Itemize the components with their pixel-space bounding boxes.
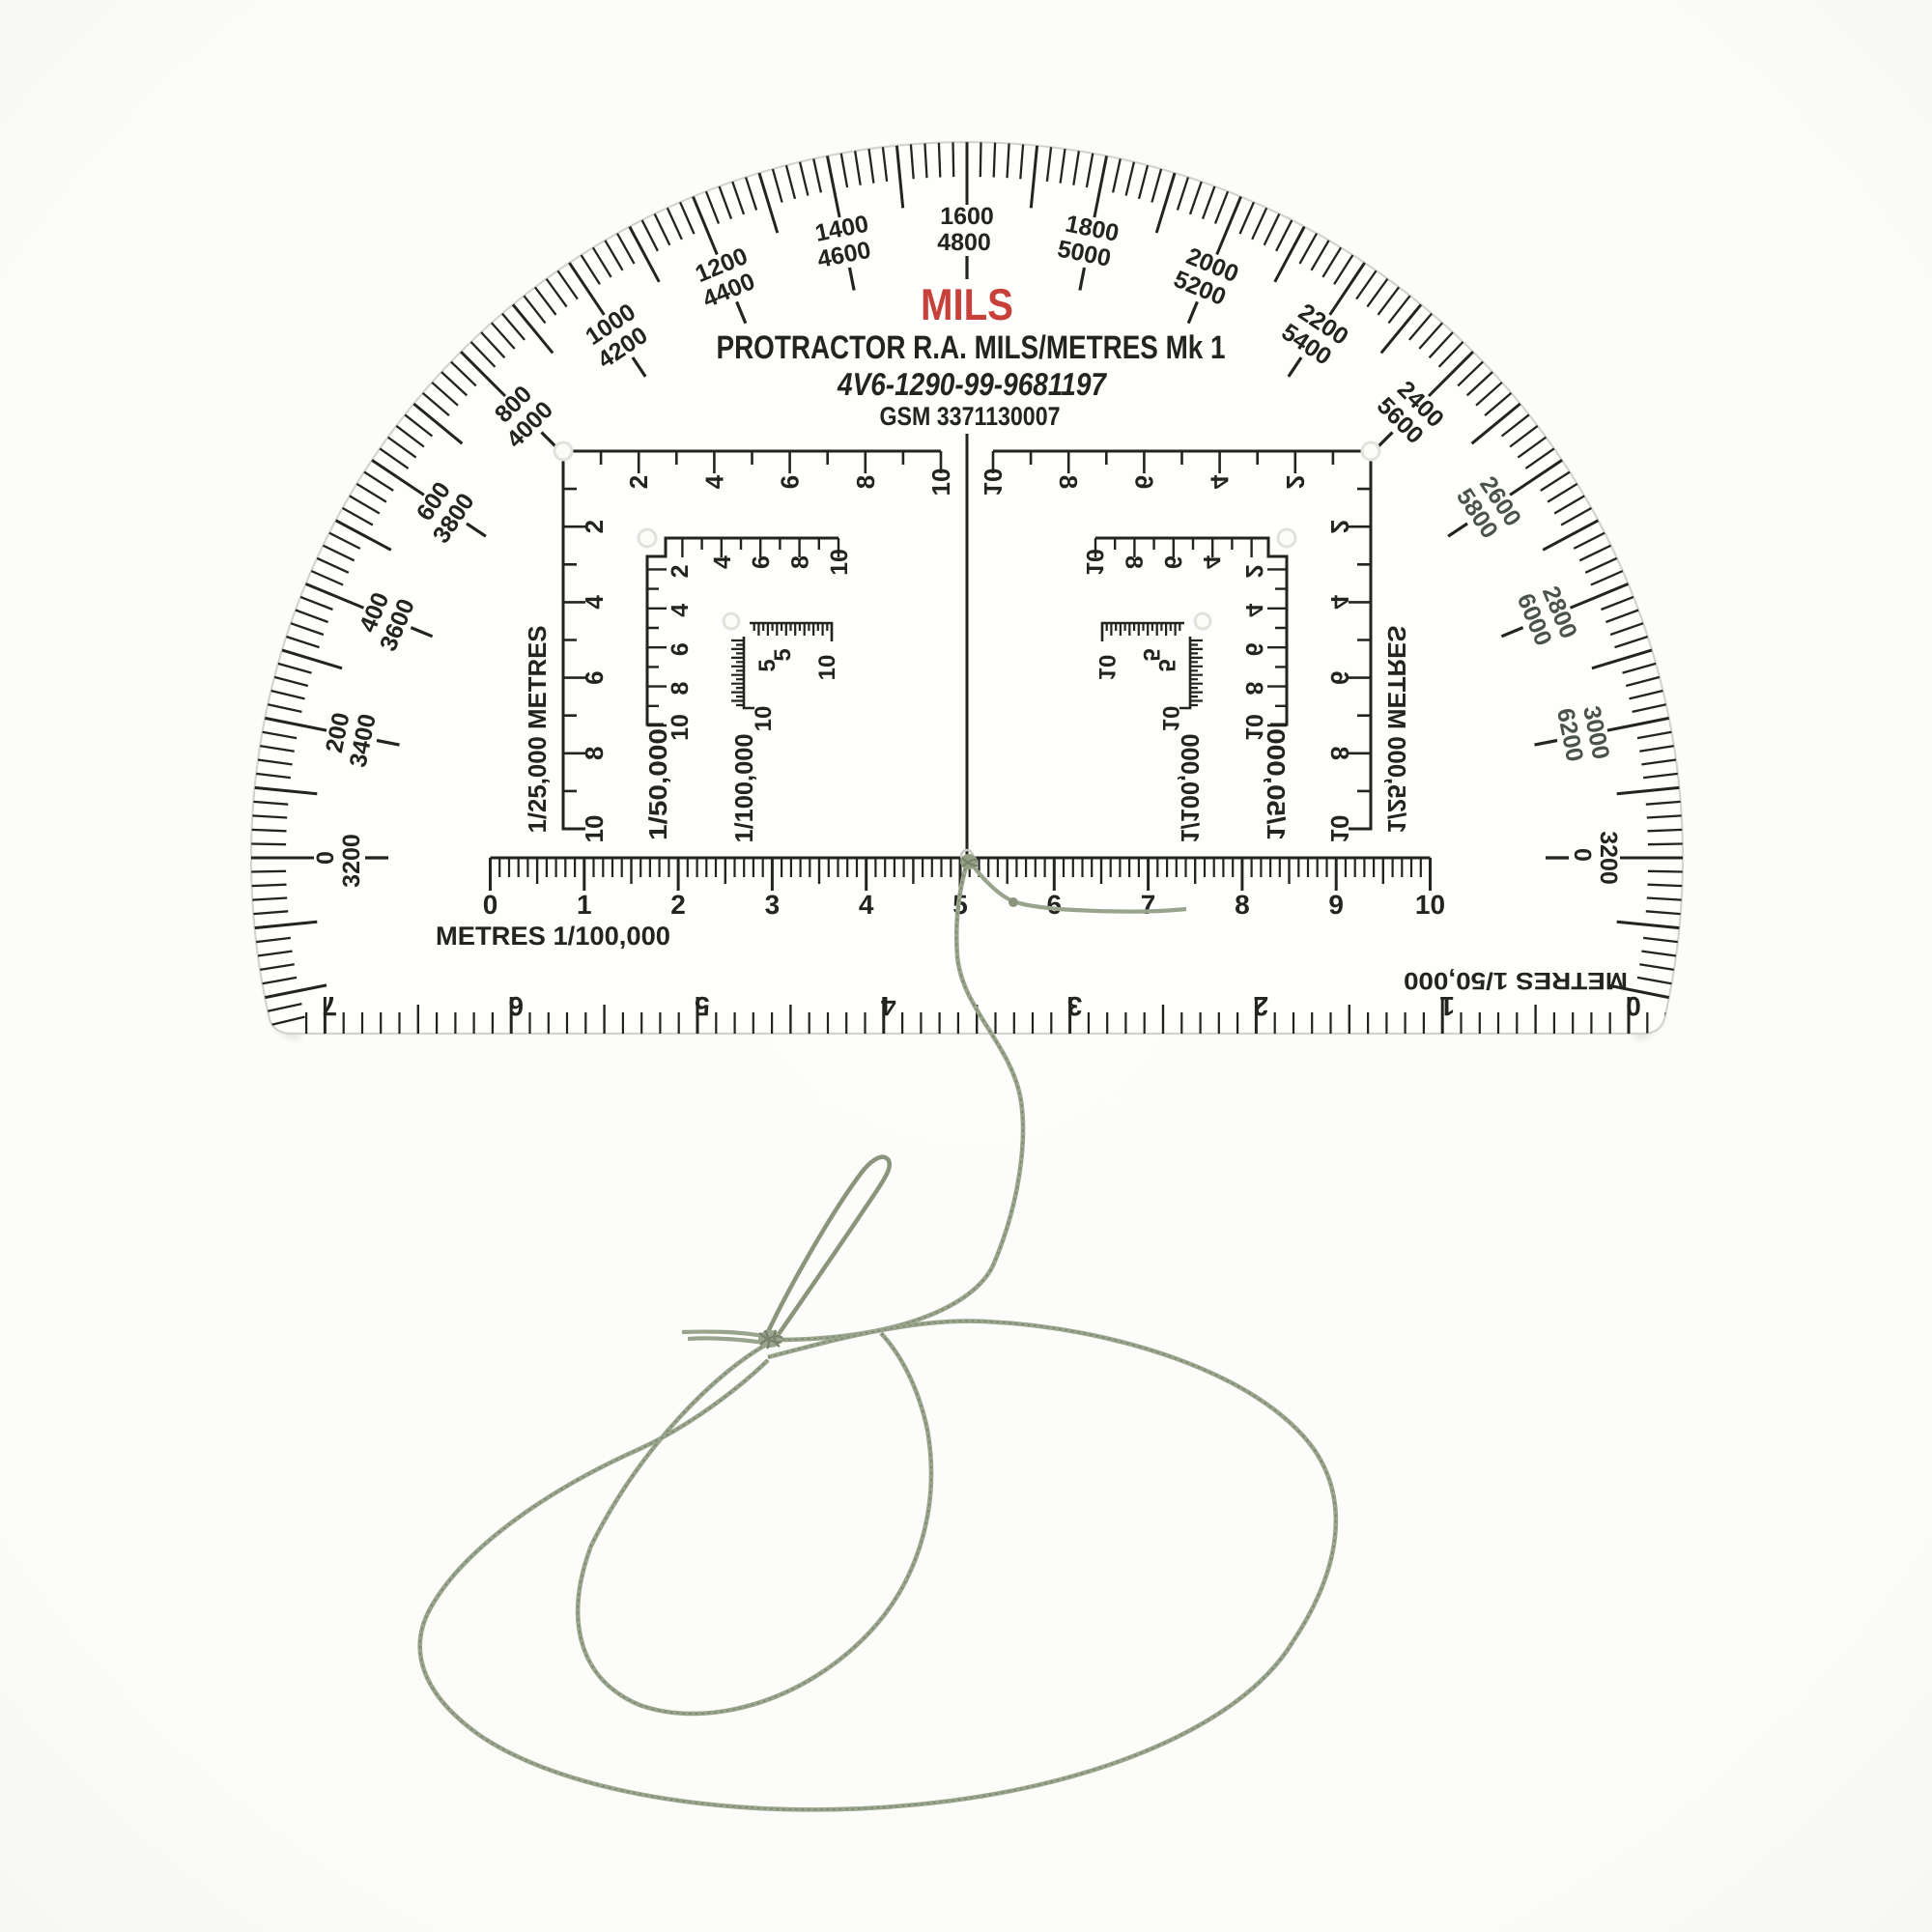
svg-text:4: 4 [1240, 604, 1267, 617]
svg-text:4: 4 [1325, 595, 1354, 610]
svg-text:METRES 1/50,000: METRES 1/50,000 [1404, 967, 1628, 994]
svg-text:7: 7 [1141, 890, 1156, 920]
svg-text:PROTRACTOR R.A. MILS/METRES Mk: PROTRACTOR R.A. MILS/METRES Mk 1 [717, 329, 1226, 366]
svg-text:METRES 1/100,000: METRES 1/100,000 [436, 922, 670, 951]
svg-text:4: 4 [699, 474, 728, 489]
svg-text:4: 4 [709, 555, 736, 569]
svg-text:6: 6 [1159, 555, 1186, 569]
svg-text:8: 8 [1325, 747, 1354, 760]
svg-text:6: 6 [508, 991, 524, 1021]
svg-text:2: 2 [1281, 475, 1310, 489]
svg-text:6: 6 [748, 555, 775, 569]
svg-text:1/25,000 METRES: 1/25,000 METRES [523, 626, 552, 834]
svg-text:1/50,000: 1/50,000 [643, 728, 672, 840]
svg-text:5: 5 [1153, 659, 1179, 671]
svg-text:2: 2 [624, 475, 653, 489]
svg-text:6: 6 [1240, 642, 1267, 656]
svg-text:1600: 1600 [940, 203, 994, 230]
svg-text:10: 10 [1325, 815, 1354, 843]
svg-text:8: 8 [851, 475, 880, 489]
svg-text:4: 4 [1206, 474, 1235, 489]
svg-text:0: 0 [1569, 848, 1596, 862]
svg-text:10: 10 [1094, 655, 1120, 681]
svg-text:1/50,000: 1/50,000 [1262, 728, 1291, 840]
svg-text:6: 6 [776, 475, 805, 489]
svg-text:8: 8 [1240, 682, 1267, 696]
svg-text:4: 4 [580, 595, 609, 610]
svg-text:1/25,000 METRES: 1/25,000 METRES [1382, 626, 1411, 834]
svg-text:0: 0 [312, 851, 339, 865]
svg-text:3: 3 [1067, 991, 1083, 1021]
svg-text:2: 2 [580, 520, 609, 533]
svg-text:4: 4 [881, 991, 896, 1021]
svg-text:8: 8 [667, 682, 694, 696]
svg-text:2: 2 [667, 564, 694, 578]
svg-text:6: 6 [1325, 670, 1354, 684]
svg-text:MILS: MILS [921, 279, 1013, 329]
svg-text:1: 1 [577, 890, 592, 920]
svg-text:10: 10 [580, 815, 609, 843]
svg-text:0: 0 [1626, 991, 1641, 1021]
svg-text:1: 1 [1439, 991, 1455, 1021]
svg-text:1/100,000: 1/100,000 [1176, 734, 1205, 843]
svg-text:3: 3 [765, 890, 781, 920]
svg-text:10: 10 [751, 706, 777, 732]
svg-text:GSM 3371130007: GSM 3371130007 [880, 402, 1061, 431]
svg-text:1/100,000: 1/100,000 [729, 734, 758, 843]
svg-text:3200: 3200 [1595, 831, 1622, 885]
svg-text:8: 8 [1120, 555, 1147, 569]
svg-text:8: 8 [787, 555, 814, 569]
svg-text:8: 8 [1054, 475, 1083, 489]
svg-text:9: 9 [1328, 890, 1344, 920]
svg-text:3200: 3200 [338, 834, 365, 888]
svg-text:10: 10 [979, 469, 1008, 497]
svg-text:7: 7 [323, 991, 338, 1021]
svg-text:5: 5 [695, 991, 710, 1021]
svg-text:2: 2 [670, 890, 686, 920]
svg-text:4V6-1290-99-9681197: 4V6-1290-99-9681197 [837, 366, 1107, 402]
svg-text:4: 4 [667, 604, 694, 617]
svg-text:10: 10 [1081, 549, 1108, 576]
svg-text:10: 10 [1157, 706, 1183, 732]
svg-text:10: 10 [1415, 890, 1445, 920]
svg-text:8: 8 [580, 747, 609, 760]
svg-text:6: 6 [580, 670, 609, 684]
svg-text:4: 4 [1198, 555, 1225, 569]
svg-text:2: 2 [1325, 520, 1354, 533]
svg-text:10: 10 [814, 655, 840, 681]
svg-text:4: 4 [859, 890, 874, 920]
svg-text:6: 6 [1129, 475, 1158, 489]
svg-text:10: 10 [826, 549, 853, 576]
svg-text:0: 0 [483, 890, 498, 920]
svg-text:4800: 4800 [937, 229, 991, 256]
svg-text:6: 6 [667, 642, 694, 656]
svg-text:10: 10 [926, 469, 955, 497]
svg-text:2: 2 [1240, 564, 1267, 578]
svg-text:5: 5 [754, 659, 781, 671]
svg-text:6: 6 [1047, 890, 1063, 920]
svg-text:2: 2 [1254, 991, 1269, 1021]
svg-text:8: 8 [1235, 890, 1250, 920]
